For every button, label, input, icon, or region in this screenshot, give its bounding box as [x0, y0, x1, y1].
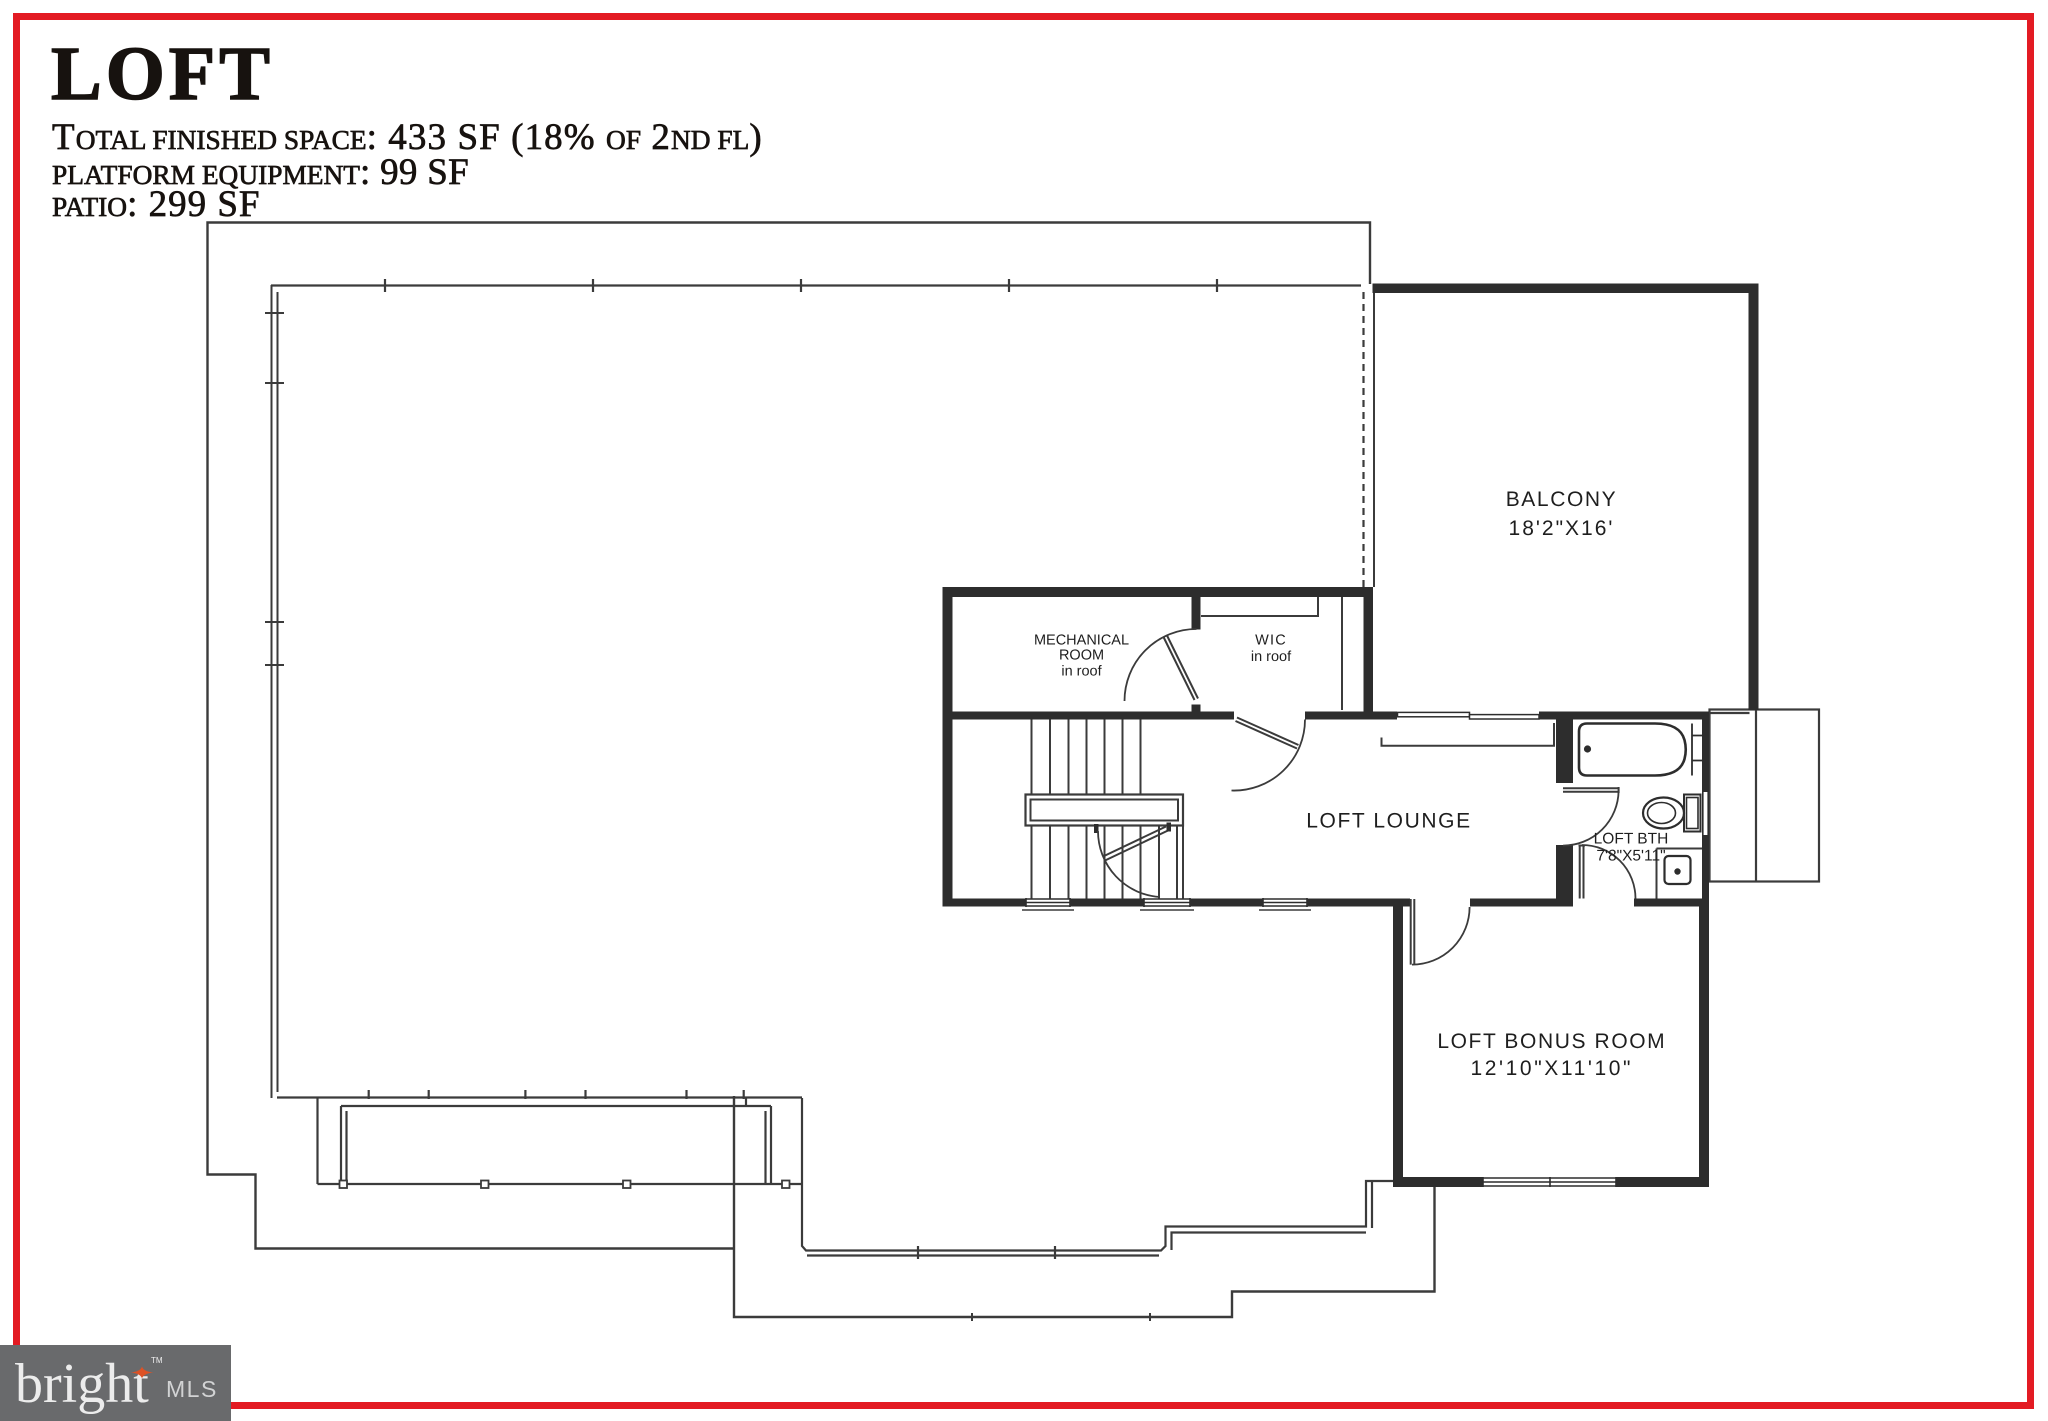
svg-text:in roof: in roof — [1061, 664, 1102, 680]
svg-text:LOFT BONUS ROOM: LOFT BONUS ROOM — [1437, 1030, 1666, 1053]
svg-text:7'8"X5'11": 7'8"X5'11" — [1596, 848, 1665, 865]
svg-text:MECHANICAL: MECHANICAL — [1034, 633, 1129, 649]
svg-text:LOFT LOUNGE: LOFT LOUNGE — [1306, 810, 1471, 833]
svg-text:BALCONY: BALCONY — [1506, 488, 1618, 511]
svg-text:LOFT BTH: LOFT BTH — [1594, 831, 1669, 848]
svg-text:WIC: WIC — [1255, 633, 1287, 649]
svg-text:ROOM: ROOM — [1059, 648, 1104, 664]
svg-text:in roof: in roof — [1251, 649, 1292, 665]
svg-text:12'10"X11'10": 12'10"X11'10" — [1470, 1057, 1633, 1080]
svg-text:18'2"X16': 18'2"X16' — [1509, 517, 1615, 540]
